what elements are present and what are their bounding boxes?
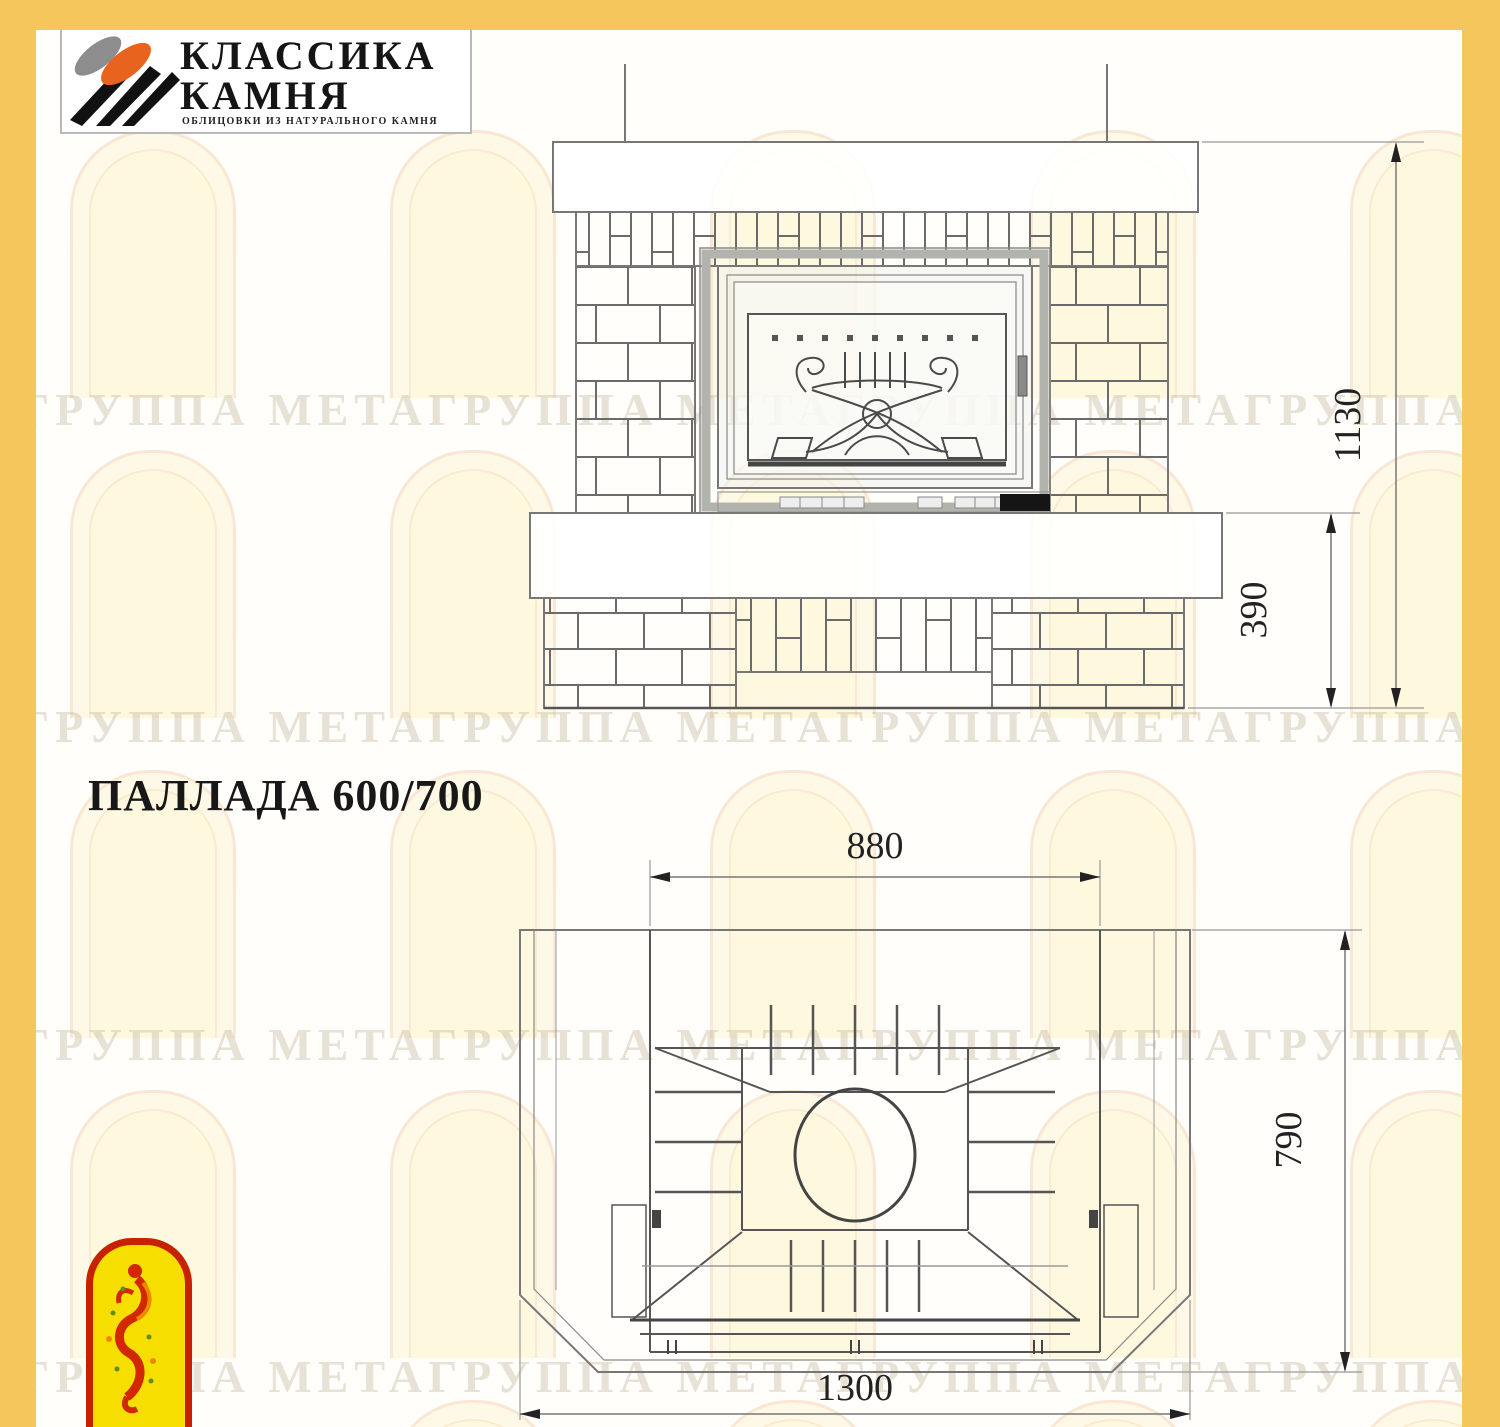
right-pier-brick xyxy=(1050,266,1168,513)
portal-legs xyxy=(612,1205,1138,1317)
left-pier-brick xyxy=(576,266,695,513)
flame-dancer-icon xyxy=(93,1245,171,1427)
hearth-shelf xyxy=(530,513,1222,598)
page-canvas: ГРУППА МЕТАГРУППА МЕТАГРУППА МЕТАГРУППА … xyxy=(0,0,1500,1427)
dim-total-height: 1130 xyxy=(1327,388,1369,463)
firebox-insert xyxy=(700,248,1050,513)
plan-view-drawing: 880 790 1300 xyxy=(490,820,1450,1427)
product-title: ПАЛЛАДА 600/700 xyxy=(88,770,484,821)
company-logo: КЛАССИКА КАМНЯ ОБЛИЦОВКИ ИЗ НАТУРАЛЬНОГО… xyxy=(60,28,472,134)
vent-dots xyxy=(772,335,978,341)
base-right-pier xyxy=(992,598,1184,708)
frame-band-top xyxy=(0,0,1500,30)
dim-base-height: 390 xyxy=(1233,582,1275,639)
meta-group-logo xyxy=(86,1238,192,1427)
dim-firebox-width: 880 xyxy=(847,825,904,867)
frame-band-left xyxy=(0,0,36,1427)
door-latch xyxy=(1018,356,1027,396)
flue-outlet xyxy=(795,1089,915,1221)
front-dimensions xyxy=(1188,142,1424,708)
base-soldier-course xyxy=(736,598,992,672)
front-view-drawing: 1130 390 xyxy=(500,55,1450,745)
dim-depth: 790 xyxy=(1268,1112,1310,1169)
brand-name-line2: КАМНЯ xyxy=(180,72,351,119)
brand-tagline: ОБЛИЦОВКИ ИЗ НАТУРАЛЬНОГО КАМНЯ xyxy=(182,116,438,127)
ashpan-handle xyxy=(1000,494,1050,511)
chimney-lines xyxy=(625,64,1107,142)
watermark-arch xyxy=(70,450,236,718)
dim-total-width: 1300 xyxy=(817,1367,893,1409)
insert-plan xyxy=(630,1005,1080,1354)
frame-band-right xyxy=(1462,0,1500,1427)
watermark-arch xyxy=(70,130,236,398)
base-left-pier xyxy=(544,598,736,708)
mantel-shelf xyxy=(553,142,1198,212)
stone-emblem-icon xyxy=(68,36,180,126)
plan-dimensions xyxy=(520,860,1362,1420)
